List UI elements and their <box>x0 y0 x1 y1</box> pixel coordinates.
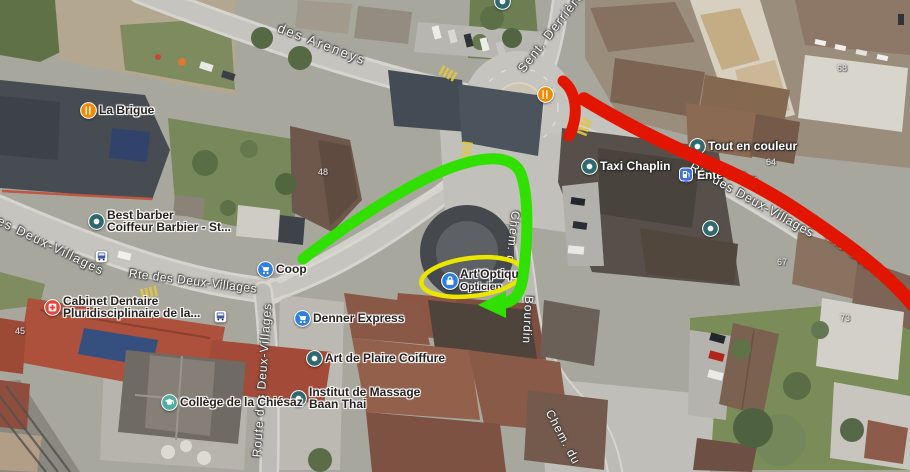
satellite-map-canvas[interactable]: des AreneysSent. Derrièredes Deux-Villag… <box>0 0 910 472</box>
red-route-annotation-short <box>563 81 575 136</box>
red-route-annotation <box>584 99 910 305</box>
yellow-highlight-ellipse <box>419 252 525 302</box>
green-route-annotation <box>303 159 527 304</box>
route-annotations <box>0 0 910 472</box>
